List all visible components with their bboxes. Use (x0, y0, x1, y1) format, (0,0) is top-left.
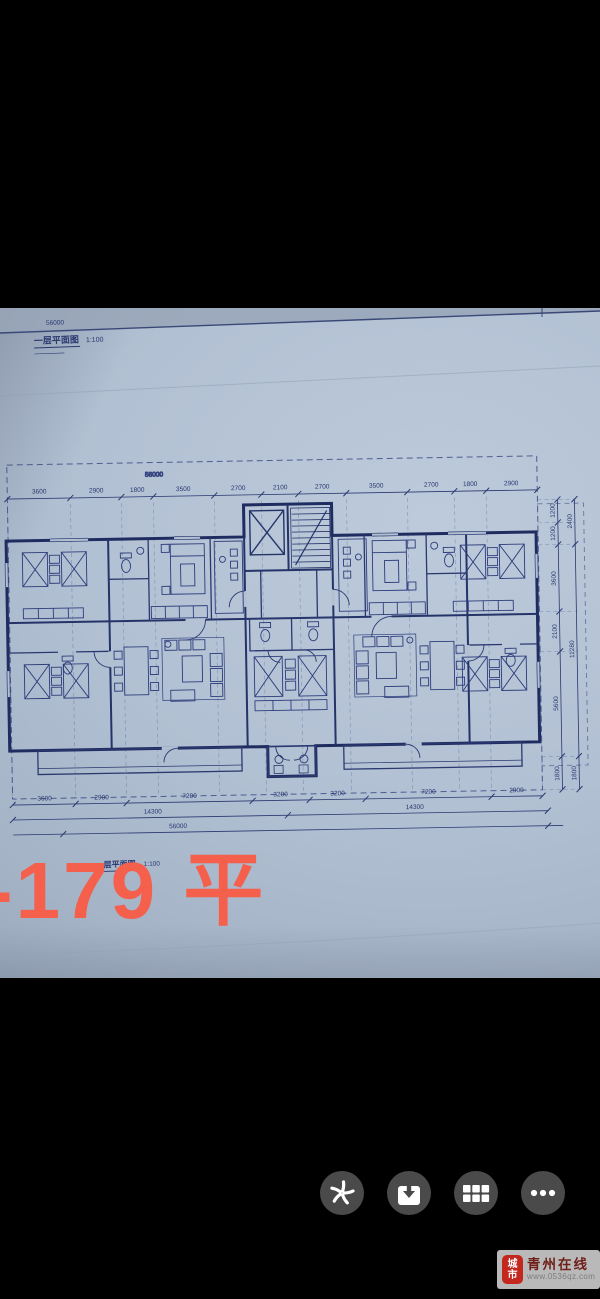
dim-label: 1200 (550, 503, 557, 518)
dim-label: 1800 (130, 487, 145, 494)
dim-label: 2900 (509, 787, 524, 794)
dim-label: 3600 (37, 795, 52, 802)
bottom-toolbar (0, 1171, 600, 1223)
seal-char-bottom: 市 (502, 1270, 523, 1281)
dim-label: 7200 (182, 793, 197, 800)
dim-label: 56000 (46, 319, 65, 327)
download-icon (394, 1178, 424, 1208)
dim-label: 11280 (569, 640, 576, 658)
sheet-top-edge: 56000 一层平面图 1:100 (0, 308, 600, 396)
twin-bed-symbol (24, 664, 89, 699)
photo-viewer-screen: 56000 一层平面图 1:100 56000 (0, 0, 600, 1299)
elevator (250, 510, 285, 555)
building (4, 500, 541, 781)
dim-label: 3500 (369, 483, 384, 490)
dim-label: 2700 (231, 485, 246, 492)
furniture (22, 536, 527, 715)
dim-label: 3200 (330, 790, 345, 797)
twin-bed-symbol (462, 656, 527, 691)
sofa-group (162, 637, 225, 701)
kitchen-counter (214, 539, 367, 614)
dim-label: 2100 (552, 624, 559, 639)
dimension-right: 1200 1200 3600 2100 5600 1800 2400 11280… (549, 496, 582, 792)
seal-char-top: 城 (502, 1259, 523, 1270)
stair-core (243, 503, 332, 571)
bed-symbol (161, 544, 205, 595)
staircase (291, 507, 331, 568)
sheet-scale: 1:100 (86, 337, 104, 345)
watermark-site-url: www.0536qz.com (527, 1272, 595, 1282)
site-watermark: 城 市 青州在线 www.0536qz.com (497, 1250, 600, 1289)
dimension-bottom: 3600 2900 7200 3200 3200 7200 2900 14300… (10, 786, 564, 838)
windows (5, 530, 540, 697)
download-button[interactable] (387, 1171, 431, 1215)
dim-label: 2700 (315, 483, 330, 490)
more-button[interactable] (521, 1171, 565, 1215)
dim-label: 1800 (463, 481, 478, 488)
bed-symbol (372, 540, 416, 591)
watermark-text: 青州在线 www.0536qz.com (527, 1257, 595, 1282)
watermark-seal: 城 市 (502, 1255, 523, 1284)
share-button[interactable] (320, 1171, 364, 1215)
dim-label: 2900 (94, 794, 109, 801)
sofa-group (354, 634, 417, 698)
dim-label: 1800 (571, 766, 578, 781)
area-caption-text: -179 平 (0, 851, 266, 931)
dim-label: 2900 (504, 480, 519, 487)
wardrobe (23, 600, 515, 715)
dim-label: 7200 (421, 789, 436, 796)
dim-label: 3600 (551, 571, 558, 586)
dim-label: 3500 (176, 486, 191, 493)
dim-label: 5600 (553, 696, 560, 711)
dim-label: 2400 (567, 514, 574, 529)
dim-label: 56000 (169, 823, 188, 830)
dimension-top: 3600 2900 1800 3500 2700 2100 2700 3500 … (4, 480, 540, 502)
twin-bed-symbol (460, 544, 525, 579)
boundary-lines: 56000 (7, 455, 589, 799)
partitions (6, 532, 538, 655)
dim-label: 2900 (89, 487, 104, 494)
dim-label: 1800 (554, 766, 561, 781)
dim-label: 14300 (144, 808, 163, 815)
apps-grid-button[interactable] (454, 1171, 498, 1215)
grid-apps-icon (462, 1179, 490, 1207)
watermark-site-name: 青州在线 (527, 1257, 595, 1272)
dim-label: 3200 (273, 791, 288, 798)
outer-wall (6, 500, 541, 781)
dim-label: 1200 (550, 526, 557, 541)
dim-label: 3600 (32, 488, 47, 495)
more-icon (529, 1179, 557, 1207)
dim-label: 56000 (145, 471, 164, 478)
dim-label: 14300 (406, 804, 425, 811)
entrance-vestibule (268, 746, 317, 777)
dim-label: 2700 (424, 482, 439, 489)
sheet-title: 一层平面图 (34, 334, 79, 346)
dim-label: 2100 (273, 484, 288, 491)
spark-share-icon (329, 1180, 355, 1206)
twin-bed-symbol (22, 552, 87, 587)
